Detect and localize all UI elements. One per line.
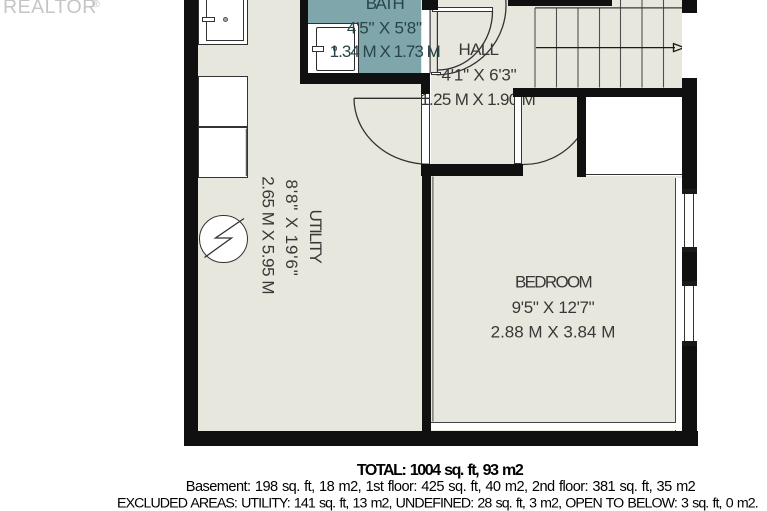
svg-text:EXCLUDED AREAS: UTILITY: 141 s: EXCLUDED AREAS: UTILITY: 141 sq. ft, 13 … [117,496,758,511]
svg-text:Basement: 198 sq. ft, 18 m2, 1: Basement: 198 sq. ft, 18 m2, 1st floor: … [186,479,696,495]
svg-text:TOTAL: 1004 sq. ft, 93 m2: TOTAL: 1004 sq. ft, 93 m2 [357,462,524,479]
